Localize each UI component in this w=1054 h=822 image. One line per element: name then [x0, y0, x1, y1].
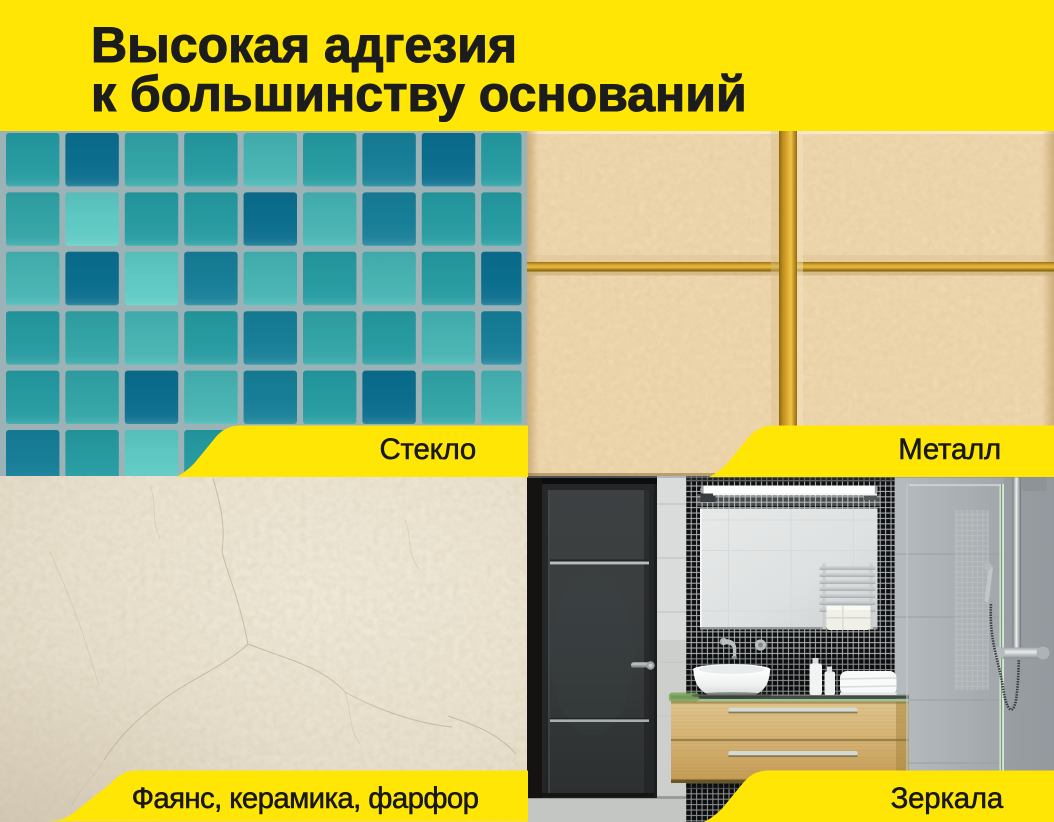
- svg-text:Зеркала: Зеркала: [891, 782, 1004, 815]
- svg-text:Стекло: Стекло: [379, 432, 476, 465]
- svg-text:Металл: Металл: [898, 432, 1001, 465]
- svg-text:Фаянс, керамика, фарфор: Фаянс, керамика, фарфор: [132, 782, 479, 815]
